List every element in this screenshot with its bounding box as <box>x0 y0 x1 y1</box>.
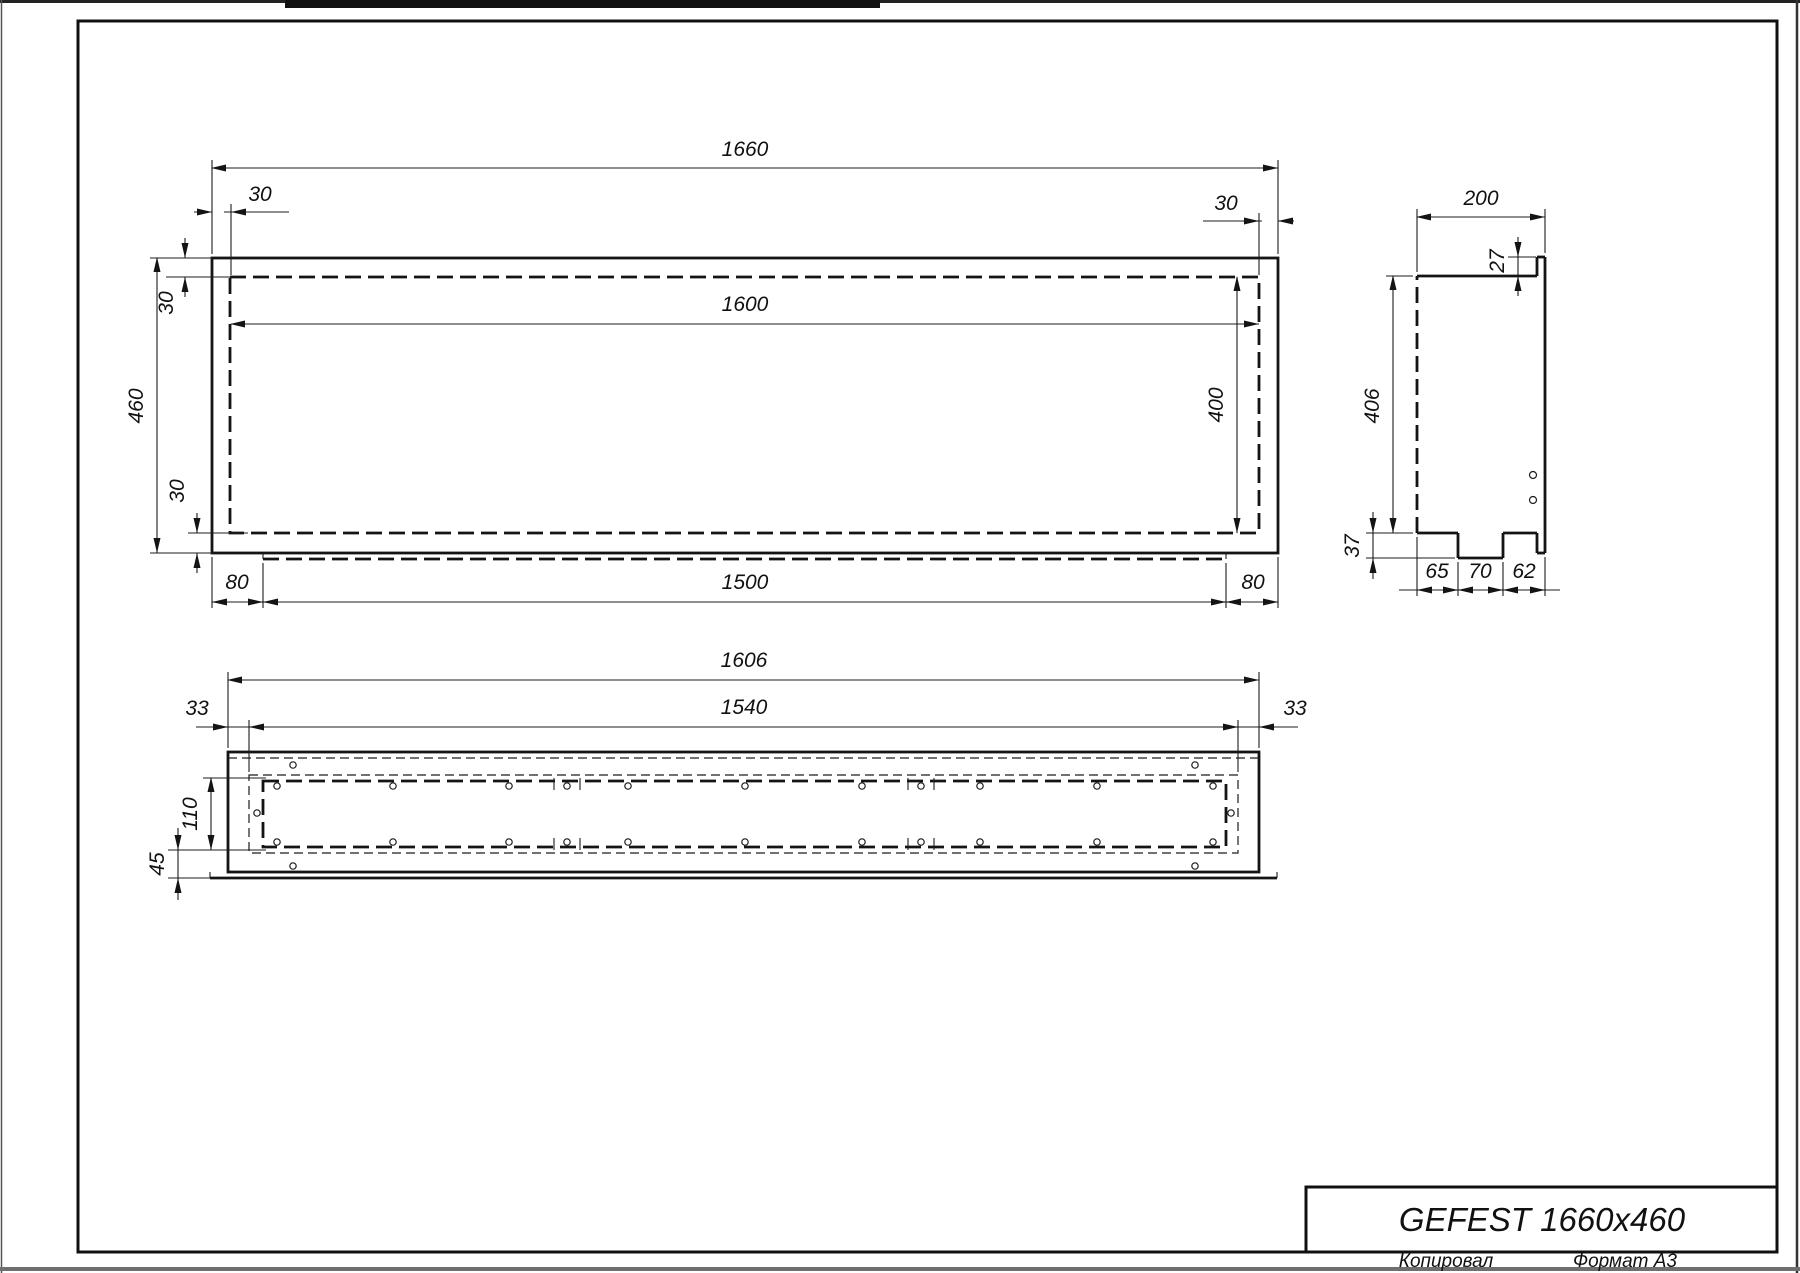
dim-side-seg2: 70 <box>1468 560 1492 583</box>
dim-front-lip-left: 80 <box>225 571 249 594</box>
dim-bottom-overall-width: 1606 <box>721 649 768 672</box>
side-hole-upper <box>1530 472 1537 479</box>
drawing-sheet: 1660 30 30 30 30 460 1600 400 <box>0 0 1800 1273</box>
drawing-frame <box>78 21 1777 1252</box>
bottom-slot-outer-dashed <box>249 775 1238 853</box>
dim-bottom-edge-left: 33 <box>185 697 209 720</box>
title-block: GEFEST 1660x460 Копировал Формат А3 <box>1306 1187 1777 1272</box>
dim-side-seg1: 65 <box>1425 560 1449 583</box>
dim-side-depth: 200 <box>1462 187 1498 210</box>
bottom-outer-rect <box>228 752 1259 872</box>
dim-side-seg3: 62 <box>1512 560 1536 583</box>
dim-front-wall-top-right: 30 <box>1214 192 1238 215</box>
dim-front-inner-width: 1600 <box>722 293 769 316</box>
side-hole-lower <box>1530 497 1537 504</box>
dim-side-rim: 27 <box>1486 248 1509 274</box>
copied-label: Копировал <box>1399 1251 1494 1272</box>
dim-front-lip-right: 80 <box>1241 571 1265 594</box>
dim-bottom-slot-width: 1540 <box>721 696 768 719</box>
dim-side-tab-height: 37 <box>1341 533 1364 558</box>
dim-front-lip-width: 1500 <box>722 571 769 594</box>
front-view: 1660 30 30 30 30 460 1600 400 <box>125 138 1294 608</box>
side-view: 200 27 406 37 65 70 62 <box>1341 187 1560 596</box>
dim-front-wall-left-top: 30 <box>155 291 178 315</box>
dim-front-overall-width: 1660 <box>722 138 769 161</box>
dim-front-wall-top-left: 30 <box>248 183 272 206</box>
format-label: Формат А3 <box>1573 1251 1677 1272</box>
bottom-view: 1606 33 1540 33 110 45 <box>146 649 1307 900</box>
dim-front-overall-height: 460 <box>125 388 148 423</box>
dim-bottom-edge-right: 33 <box>1283 697 1307 720</box>
dim-front-inner-height: 400 <box>1205 387 1228 422</box>
dim-bottom-flange: 45 <box>146 852 169 876</box>
bottom-slot-inner-dashed <box>263 781 1226 847</box>
dim-front-wall-left-bottom: 30 <box>166 479 189 503</box>
dim-side-height: 406 <box>1361 388 1384 423</box>
dim-bottom-slot-height: 110 <box>179 797 202 831</box>
title-block-title: GEFEST 1660x460 <box>1399 1201 1686 1238</box>
